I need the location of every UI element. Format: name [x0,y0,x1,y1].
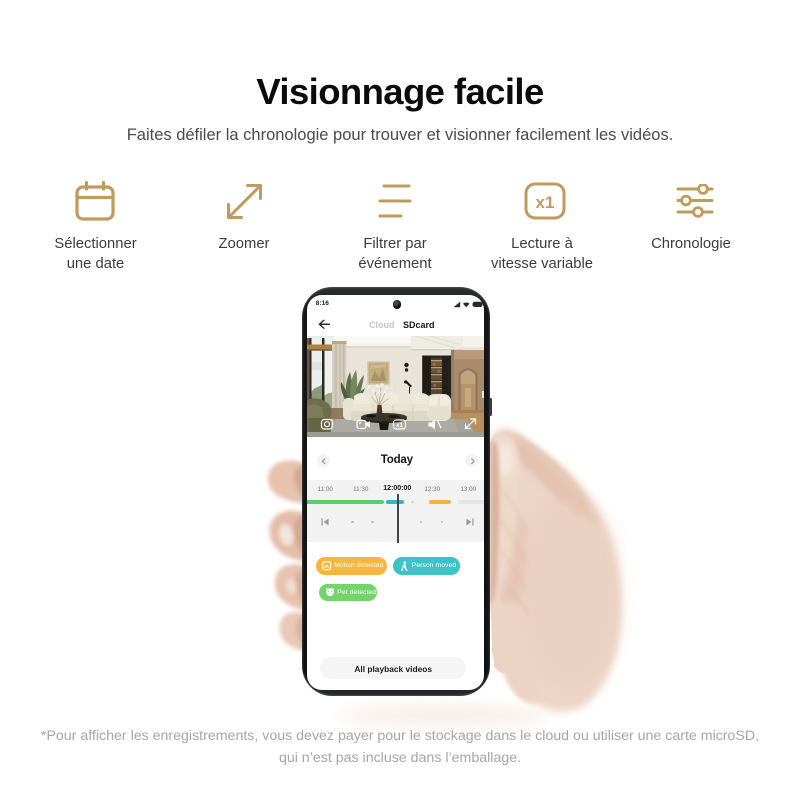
svg-text:x1: x1 [536,193,555,212]
svg-text:x1: x1 [396,422,403,429]
